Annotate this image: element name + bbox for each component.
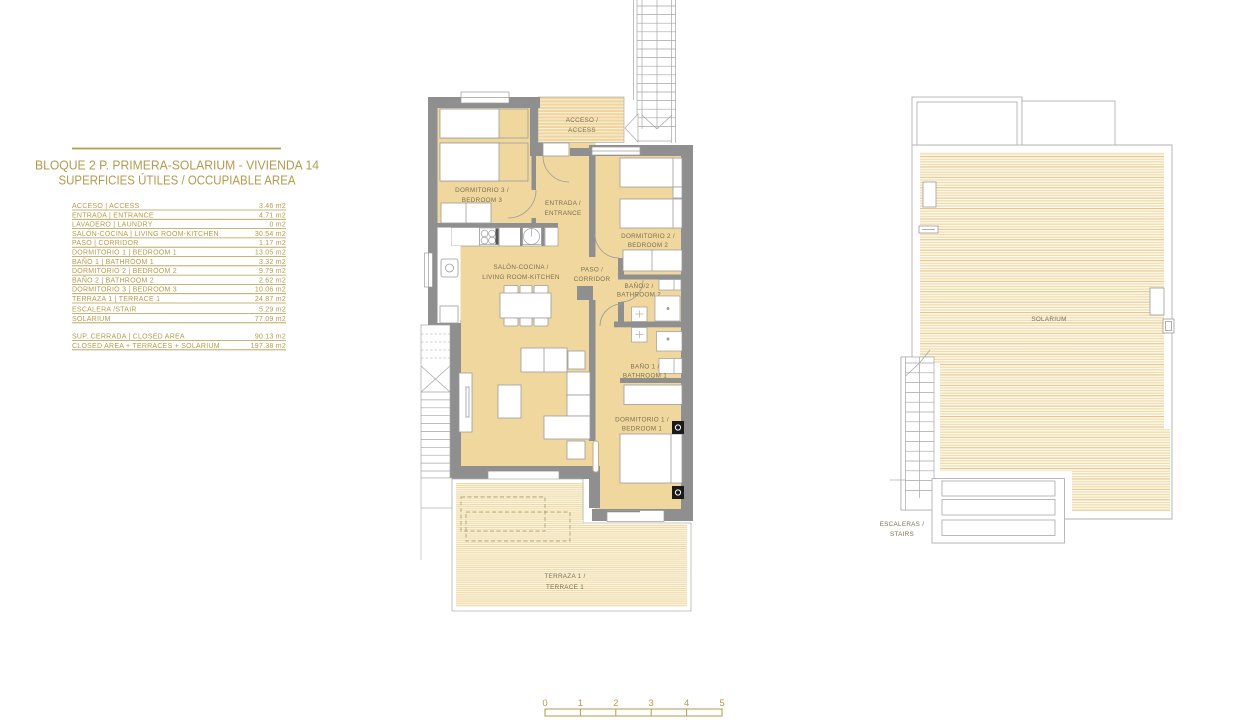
svg-text:BEDROOM 1: BEDROOM 1 (622, 426, 663, 433)
svg-text:DORMITORIO 2 /: DORMITORIO 2 / (621, 233, 675, 240)
svg-text:90.13 m2: 90.13 m2 (255, 334, 286, 341)
svg-text:ACCESO | ACCESS: ACCESO | ACCESS (72, 203, 140, 210)
svg-text:2.62 m2: 2.62 m2 (259, 277, 286, 284)
svg-text:DORMITORIO 3 | BEDROOM 3: DORMITORIO 3 | BEDROOM 3 (72, 287, 177, 294)
svg-text:ACCESS: ACCESS (568, 127, 596, 134)
svg-text:BEDROOM 3: BEDROOM 3 (462, 197, 503, 204)
svg-text:197.38 m2: 197.38 m2 (251, 343, 286, 350)
svg-text:SUPERFICIES ÚTILES / OCCUPIABL: SUPERFICIES ÚTILES / OCCUPIABLE AREA (59, 173, 297, 188)
svg-text:CORRIDOR: CORRIDOR (574, 276, 611, 283)
svg-text:5: 5 (719, 698, 724, 709)
svg-text:BATHROOM 2: BATHROOM 2 (617, 292, 661, 299)
svg-text:BAÑO/2 /: BAÑO/2 / (625, 281, 654, 290)
svg-text:9.79 m2: 9.79 m2 (259, 268, 286, 275)
svg-text:BATHROOM 1: BATHROOM 1 (623, 373, 667, 380)
svg-text:13.05 m2: 13.05 m2 (255, 250, 286, 257)
svg-text:30.54 m2: 30.54 m2 (255, 231, 286, 238)
svg-text:DORMITORIO 1 | BEDROOM 1: DORMITORIO 1 | BEDROOM 1 (72, 250, 177, 257)
svg-text:ENTRADA | ENTRANCE: ENTRADA | ENTRANCE (72, 212, 154, 219)
svg-text:ENTRADA /: ENTRADA / (545, 200, 581, 207)
svg-text:TERRAZA 1 /: TERRAZA 1 / (544, 573, 585, 580)
svg-text:DORMITORIO 1 /: DORMITORIO 1 / (615, 417, 669, 424)
svg-text:TERRAZA 1 | TERRACE 1: TERRAZA 1 | TERRACE 1 (72, 296, 160, 303)
svg-text:1: 1 (578, 698, 583, 709)
svg-text:BAÑO 1 | BATHROOM 1: BAÑO 1 | BATHROOM 1 (72, 257, 154, 266)
svg-text:PASO | CORRIDOR: PASO | CORRIDOR (72, 240, 139, 247)
svg-text:77.09 m2: 77.09 m2 (255, 316, 286, 323)
svg-text:PASO /: PASO / (581, 267, 603, 274)
svg-text:0: 0 (542, 698, 547, 709)
svg-text:SOLARIUM: SOLARIUM (1031, 316, 1066, 323)
svg-text:SOLARIUM: SOLARIUM (72, 316, 111, 323)
svg-text:24.87 m2: 24.87 m2 (255, 296, 286, 303)
svg-text:LIVING ROOM-KITCHEN: LIVING ROOM-KITCHEN (482, 274, 560, 281)
svg-text:TERRACE 1: TERRACE 1 (546, 584, 584, 591)
svg-text:4: 4 (684, 698, 689, 709)
svg-text:BLOQUE 2 P. PRIMERA-SOLARIUM -: BLOQUE 2 P. PRIMERA-SOLARIUM - VIVIENDA … (35, 159, 319, 173)
svg-text:ACCESO /: ACCESO / (566, 117, 599, 124)
svg-text:ESCALERAS /: ESCALERAS / (880, 521, 925, 528)
svg-text:0 m2: 0 m2 (269, 222, 286, 229)
svg-text:STAIRS: STAIRS (890, 531, 914, 538)
svg-text:5.29 m2: 5.29 m2 (259, 307, 286, 314)
svg-text:BAÑO 1 /: BAÑO 1 / (631, 362, 660, 371)
svg-text:4.71 m2: 4.71 m2 (259, 212, 286, 219)
svg-text:3.46 m2: 3.46 m2 (259, 203, 286, 210)
svg-text:3: 3 (649, 698, 654, 709)
svg-text:DORMITORIO 3 /: DORMITORIO 3 / (455, 187, 509, 194)
svg-text:BAÑO 2 | BATHROOM 2: BAÑO 2 | BATHROOM 2 (72, 275, 154, 284)
svg-text:2: 2 (613, 698, 618, 709)
svg-text:DORMITORIO 2 | BEDROOM 2: DORMITORIO 2 | BEDROOM 2 (72, 268, 177, 275)
svg-text:ENTRANCE: ENTRANCE (544, 210, 581, 217)
svg-text:SALÓN-COCINA /: SALÓN-COCINA / (493, 262, 548, 271)
svg-text:BEDROOM 2: BEDROOM 2 (628, 242, 669, 249)
svg-text:CLOSED AREA + TERRACES + SOLAR: CLOSED AREA + TERRACES + SOLARIUM (72, 343, 220, 350)
svg-text:1.17 m2: 1.17 m2 (259, 240, 286, 247)
svg-text:LAVADERO | LAUNDRY: LAVADERO | LAUNDRY (72, 222, 153, 229)
svg-text:ESCALERA /STAIR: ESCALERA /STAIR (72, 307, 137, 314)
svg-text:10.06 m2: 10.06 m2 (255, 287, 286, 294)
svg-text:SALÓN-COCINA | LIVING ROOM-KIT: SALÓN-COCINA | LIVING ROOM-KITCHEN (72, 229, 219, 238)
svg-text:3.32 m2: 3.32 m2 (259, 259, 286, 266)
svg-text:SUP. CERRADA | CLOSED AREA: SUP. CERRADA | CLOSED AREA (72, 334, 185, 341)
